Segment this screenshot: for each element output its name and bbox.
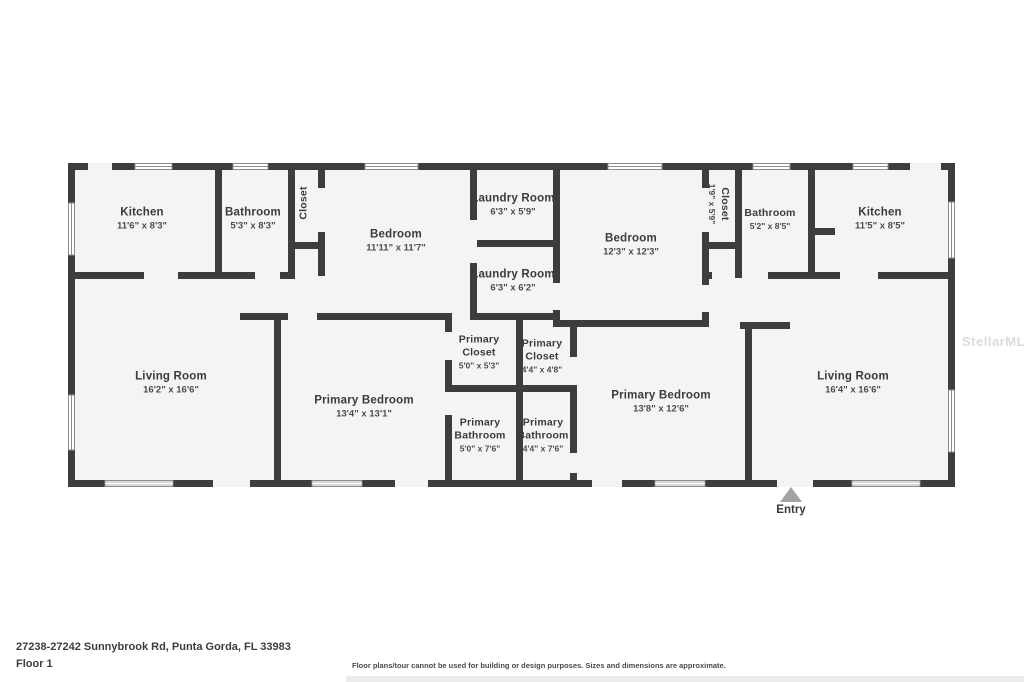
room-name: Living Room	[817, 370, 889, 384]
room-name: Primary Bathroom	[515, 417, 571, 443]
room-dims: 13'8" x 12'6"	[611, 404, 711, 416]
room-label-primary-bathroom-left: Primary Bathroom 5'0" x 7'6"	[449, 417, 511, 454]
room-dims: 4'4" x 4'8"	[516, 364, 568, 374]
room-name: Kitchen	[855, 206, 905, 220]
room-name: Bedroom	[603, 232, 659, 246]
room-name: Bathroom	[225, 206, 281, 220]
room-label-living-room-left: Living Room 16'2" x 16'6"	[135, 370, 207, 397]
room-name: Closet	[718, 184, 731, 224]
room-dims: 5'3" x 8'3"	[225, 221, 281, 233]
room-label-bedroom-left: Bedroom 11'11" x 11'7"	[366, 228, 426, 255]
watermark: StellarMLS	[962, 334, 1024, 349]
room-name: Primary Closet	[516, 338, 568, 364]
room-name: Living Room	[135, 370, 207, 384]
room-label-closet-right: Closet 1'9" x 5'9"	[707, 184, 731, 224]
room-name: Bathroom	[744, 207, 795, 220]
address-text: 27238-27242 Sunnybrook Rd, Punta Gorda, …	[16, 641, 291, 653]
room-label-laundry-room-top: Laundry Room 6'3" x 5'9"	[471, 192, 555, 219]
disclaimer-text: Floor plans/tour cannot be used for buil…	[352, 661, 726, 670]
room-name: Closet	[298, 186, 311, 219]
room-dims: 6'3" x 6'2"	[471, 283, 555, 295]
room-dims: 6'3" x 5'9"	[471, 207, 555, 219]
floorplan-drawing	[0, 0, 1024, 682]
room-label-primary-bathroom-right: Primary Bathroom 4'4" x 7'6"	[515, 417, 571, 454]
room-name: Primary Bedroom	[611, 389, 711, 403]
floor-label: Floor 1	[16, 658, 53, 670]
footer-bar	[346, 676, 1024, 682]
room-label-bedroom-right: Bedroom 12'3" x 12'3"	[603, 232, 659, 259]
room-label-closet-left: Closet	[298, 186, 311, 219]
room-label-kitchen-right: Kitchen 11'5" x 8'5"	[855, 206, 905, 233]
room-dims: 11'11" x 11'7"	[366, 243, 426, 255]
floorplan-page: Kitchen 11'6" x 8'3" Bathroom 5'3" x 8'3…	[0, 0, 1024, 682]
room-dims: 5'0" x 5'3"	[450, 360, 508, 370]
room-dims: 16'4" x 16'6"	[817, 385, 889, 397]
room-dims: 1'9" x 5'9"	[707, 184, 717, 224]
room-name: Primary Bedroom	[314, 394, 414, 408]
room-name: Laundry Room	[471, 192, 555, 206]
room-label-primary-closet-left: Primary Closet 5'0" x 5'3"	[450, 334, 508, 371]
room-dims: 5'2" x 8'5"	[744, 221, 795, 231]
room-dims: 12'3" x 12'3"	[603, 247, 659, 259]
room-dims: 11'5" x 8'5"	[855, 221, 905, 233]
room-dims: 16'2" x 16'6"	[135, 385, 207, 397]
room-label-primary-closet-right: Primary Closet 4'4" x 4'8"	[516, 338, 568, 375]
room-name: Kitchen	[117, 206, 167, 220]
entry-arrow-icon	[780, 487, 802, 502]
room-name: Laundry Room	[471, 268, 555, 282]
room-label-living-room-right: Living Room 16'4" x 16'6"	[817, 370, 889, 397]
room-dims: 4'4" x 7'6"	[515, 443, 571, 453]
room-name: Primary Closet	[450, 334, 508, 360]
room-label-bathroom-right: Bathroom 5'2" x 8'5"	[744, 207, 795, 231]
room-label-laundry-room-bottom: Laundry Room 6'3" x 6'2"	[471, 268, 555, 295]
room-name: Bedroom	[366, 228, 426, 242]
room-label-primary-bedroom-right: Primary Bedroom 13'8" x 12'6"	[611, 389, 711, 416]
room-dims: 13'4" x 13'1"	[314, 409, 414, 421]
room-name: Primary Bathroom	[449, 417, 511, 443]
room-label-bathroom-left: Bathroom 5'3" x 8'3"	[225, 206, 281, 233]
room-dims: 11'6" x 8'3"	[117, 221, 167, 233]
room-dims: 5'0" x 7'6"	[449, 443, 511, 453]
room-label-primary-bedroom-left: Primary Bedroom 13'4" x 13'1"	[314, 394, 414, 421]
room-label-kitchen-left: Kitchen 11'6" x 8'3"	[117, 206, 167, 233]
entry-label: Entry	[776, 504, 805, 516]
